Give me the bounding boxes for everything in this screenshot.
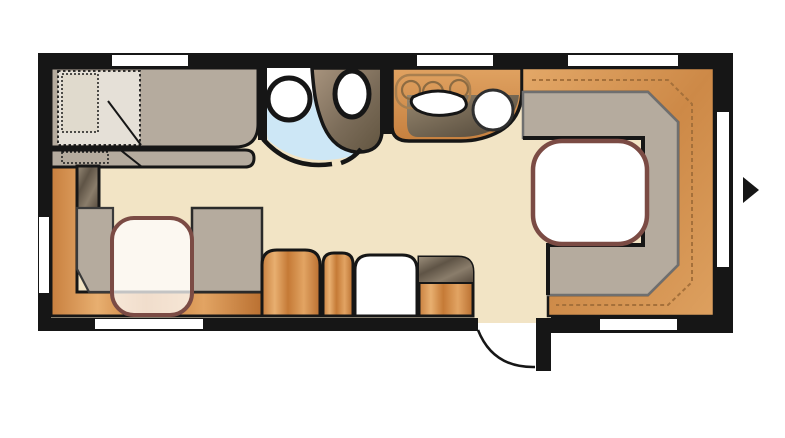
window-bottom-2 [600,319,677,330]
bedroom-area [51,68,258,167]
bathroom-area [258,66,392,165]
kitchen-partition-wall [380,66,392,134]
storage-ottoman-narrow [323,253,353,316]
dinette-backrest-left [77,208,113,292]
bed-foot-shelf [51,150,254,167]
window-left [39,217,49,293]
u-lounge-area [522,68,714,316]
window-right [717,112,729,267]
toilet [335,71,369,117]
entry-door-leaf [536,318,551,371]
kitchen-round-sink [473,90,513,130]
window-top-1 [112,55,188,66]
lounge-table [533,141,647,244]
window-top-2 [417,55,493,66]
kitchen-sink-basin [411,91,466,115]
wardrobe [77,166,99,209]
kitchen-area [392,68,522,141]
mid-cabinet-row [262,250,473,316]
bathroom-partition-wall [258,66,267,140]
entry-door-arc [478,330,535,367]
floorplan-canvas [0,0,785,438]
storage-ottoman-wide [262,250,320,316]
dinette-table [112,218,192,315]
pillow [62,74,98,132]
dinette-backrest-right [192,208,262,292]
floorplan-drawing [0,0,785,438]
drawer-cabinet-top [419,257,473,283]
window-bottom-1 [95,319,203,329]
shower [268,78,310,120]
window-top-3 [568,55,678,66]
entry-direction-arrow-icon [743,177,759,203]
door-threshold [478,318,536,323]
white-cabinet [355,255,417,316]
